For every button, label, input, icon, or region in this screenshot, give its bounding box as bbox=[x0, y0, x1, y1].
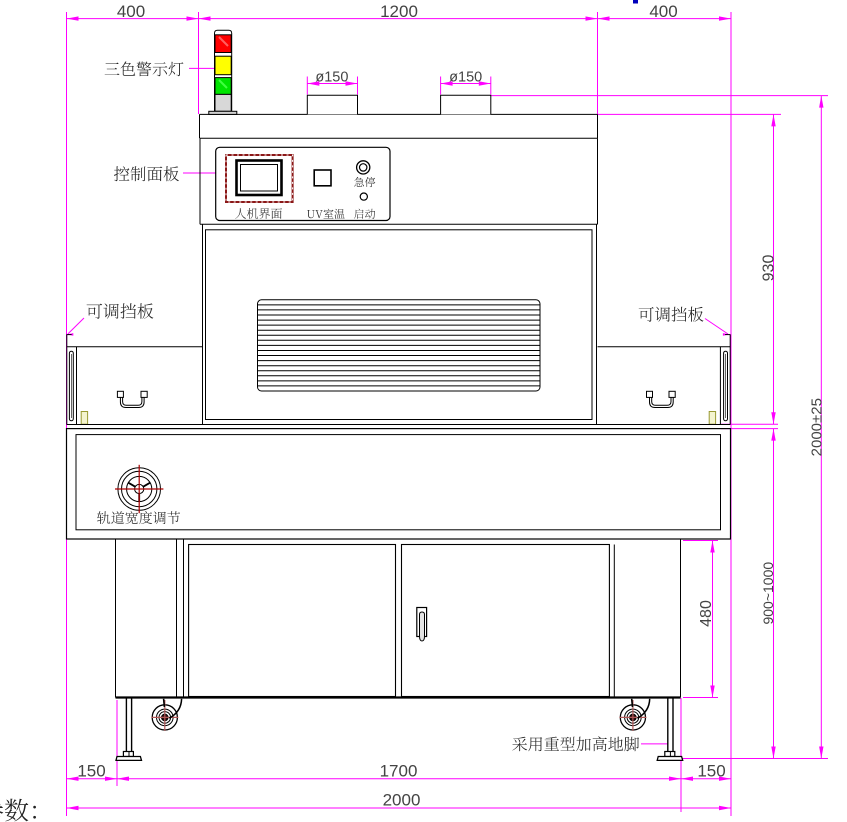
svg-text:150: 150 bbox=[77, 762, 105, 781]
svg-text:150: 150 bbox=[697, 762, 725, 781]
svg-text:1700: 1700 bbox=[380, 762, 418, 781]
svg-text:900~1000: 900~1000 bbox=[760, 562, 776, 625]
svg-text:400: 400 bbox=[649, 2, 677, 21]
svg-text:400: 400 bbox=[117, 2, 145, 21]
svg-text:480: 480 bbox=[698, 600, 715, 627]
svg-text:ø150: ø150 bbox=[449, 70, 482, 86]
svg-text:2000: 2000 bbox=[383, 791, 421, 810]
svg-text:1200: 1200 bbox=[380, 2, 418, 21]
svg-text:930: 930 bbox=[760, 255, 777, 282]
svg-text:2000±25: 2000±25 bbox=[809, 398, 826, 456]
svg-text:ø150: ø150 bbox=[315, 70, 348, 86]
